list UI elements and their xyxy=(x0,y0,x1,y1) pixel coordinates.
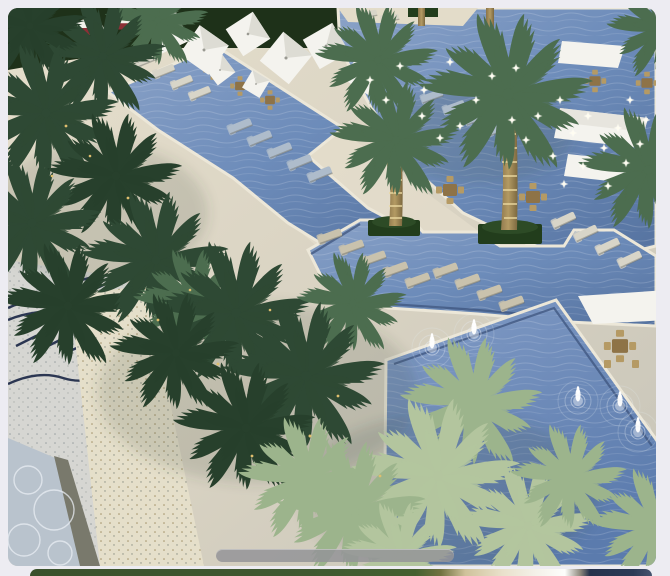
horizontal-scrollbar-thumb[interactable] xyxy=(216,549,454,562)
next-photo-strip[interactable] xyxy=(30,569,652,576)
resort-pool-photo xyxy=(8,8,656,566)
pool-rendering-svg xyxy=(8,8,656,566)
top-palm-trunk xyxy=(418,8,425,26)
image-gallery xyxy=(0,0,670,576)
